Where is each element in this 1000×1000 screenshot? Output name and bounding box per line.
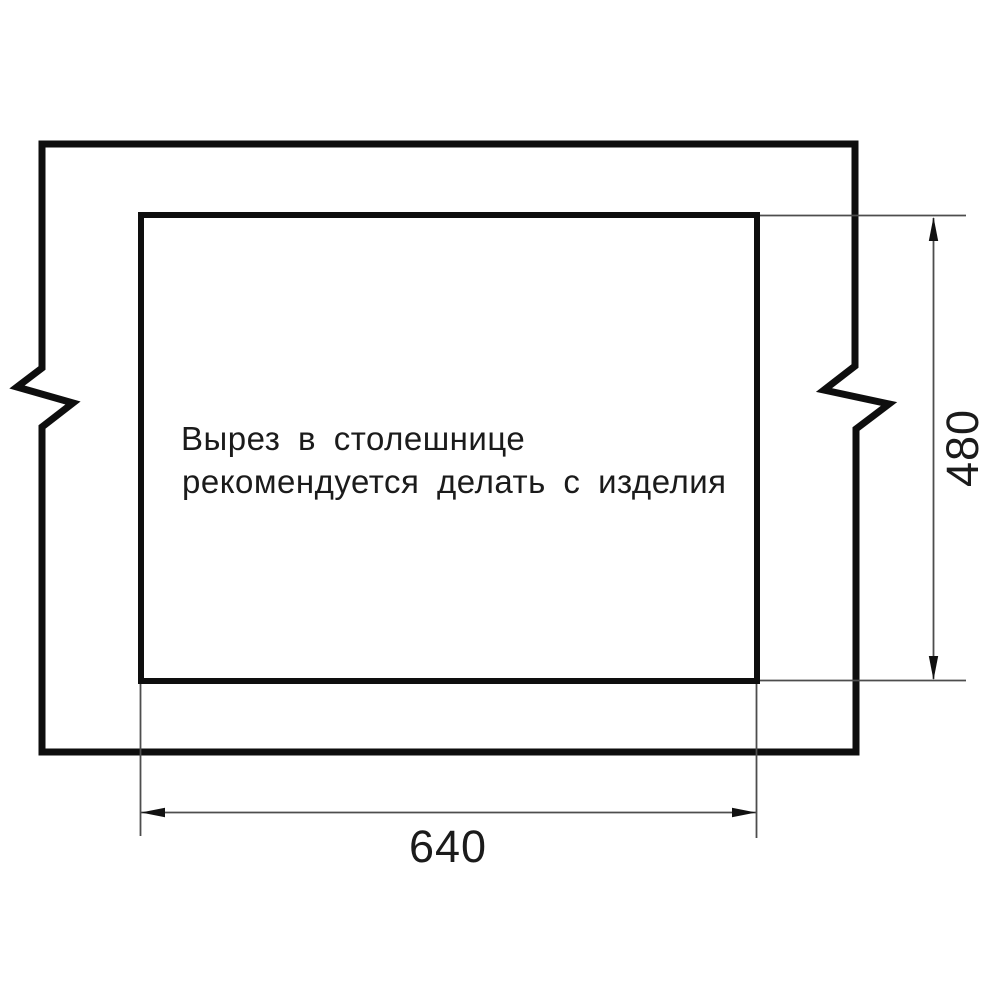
width-arrow-left-icon xyxy=(141,808,165,817)
width-arrow-right-icon xyxy=(732,808,756,817)
width-dimension-label: 640 xyxy=(409,821,487,872)
height-arrow-bottom-icon xyxy=(929,656,938,680)
height-dimension-label: 480 xyxy=(937,409,988,487)
note-line-2: рекомендуется делать с изделия xyxy=(182,463,727,500)
technical-drawing-canvas: Вырез в столешнице рекомендуется делать … xyxy=(0,0,1000,1000)
drawing-svg: Вырез в столешнице рекомендуется делать … xyxy=(0,0,1000,1000)
height-arrow-top-icon xyxy=(929,217,938,241)
note-line-1: Вырез в столешнице xyxy=(181,420,525,457)
